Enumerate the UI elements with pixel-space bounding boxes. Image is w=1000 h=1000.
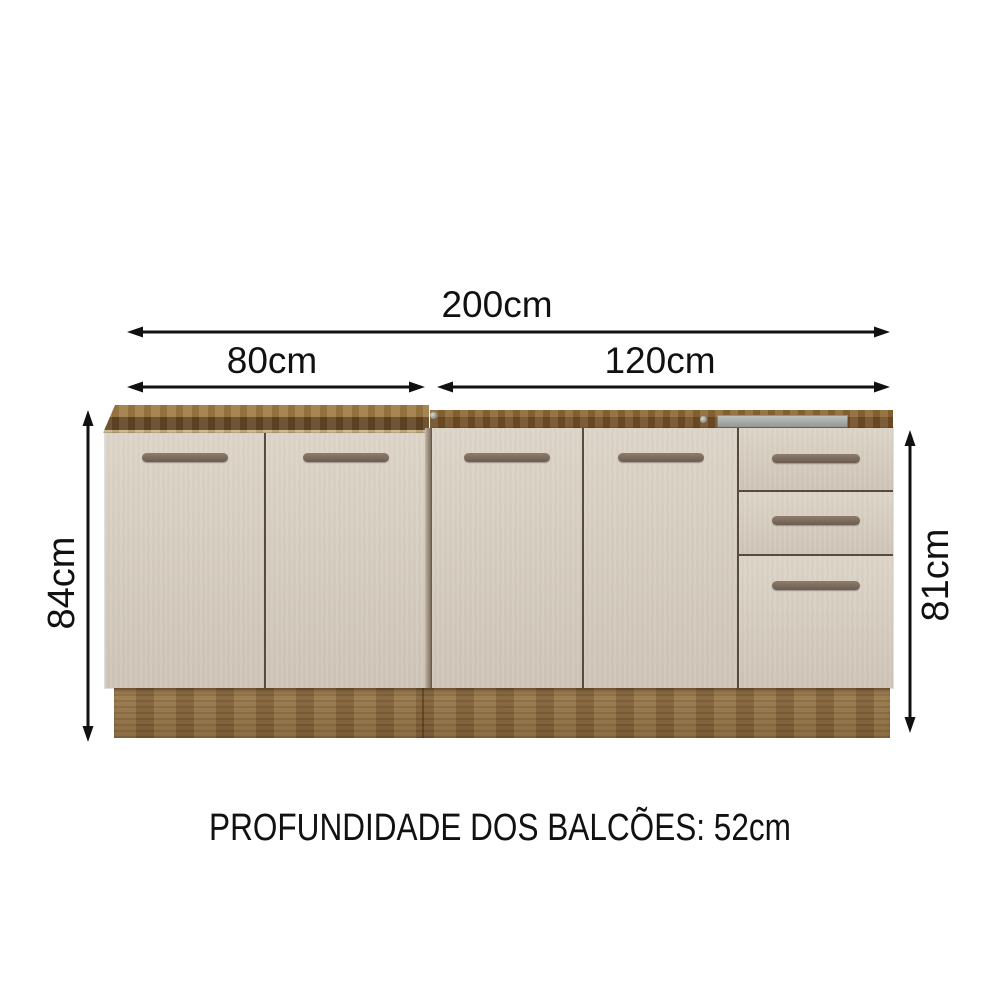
screw-icon [700,416,707,423]
left-cabinet-door-2 [266,433,425,688]
drawer-2 [739,492,893,554]
base-kickplate [114,688,890,738]
drawer-handle [772,581,860,590]
door-handle [464,453,550,462]
cabinet-section-gap [425,428,432,688]
left-height-arrow [83,410,94,742]
right-section-height-label: 81cm [917,490,955,660]
right-height-arrow [905,430,916,733]
right-section-width-label: 120cm [570,342,750,379]
right-section-width-arrow [437,382,890,393]
door-handle [303,453,389,462]
drawer-stack [739,428,893,688]
base-seam [422,688,424,738]
left-cabinet-countertop [103,405,429,433]
depth-note: PROFUNDIDADE DOS BALCÕES: 52cm [85,809,915,847]
total-width-label: 200cm [377,286,617,323]
left-cabinet [105,433,425,688]
drawer-handle [772,454,860,463]
screw-icon [430,412,437,419]
right-cabinet [432,428,893,688]
door-handle [142,453,228,462]
left-cabinet-door-1 [105,433,264,688]
right-cabinet-door-2 [584,428,737,688]
left-section-height-label: 84cm [43,498,81,668]
product-dimension-diagram: 200cm 80cm 120cm 84cm 81cm [0,0,1000,1000]
drawer-1 [739,428,893,490]
left-section-width-arrow [127,382,425,393]
total-width-arrow [127,327,890,338]
drawer-3 [739,556,893,688]
right-cabinet-door-1 [432,428,582,688]
door-handle [618,453,704,462]
drawer-handle [772,516,860,525]
left-section-width-label: 80cm [192,342,352,379]
sink-rail [717,415,848,428]
